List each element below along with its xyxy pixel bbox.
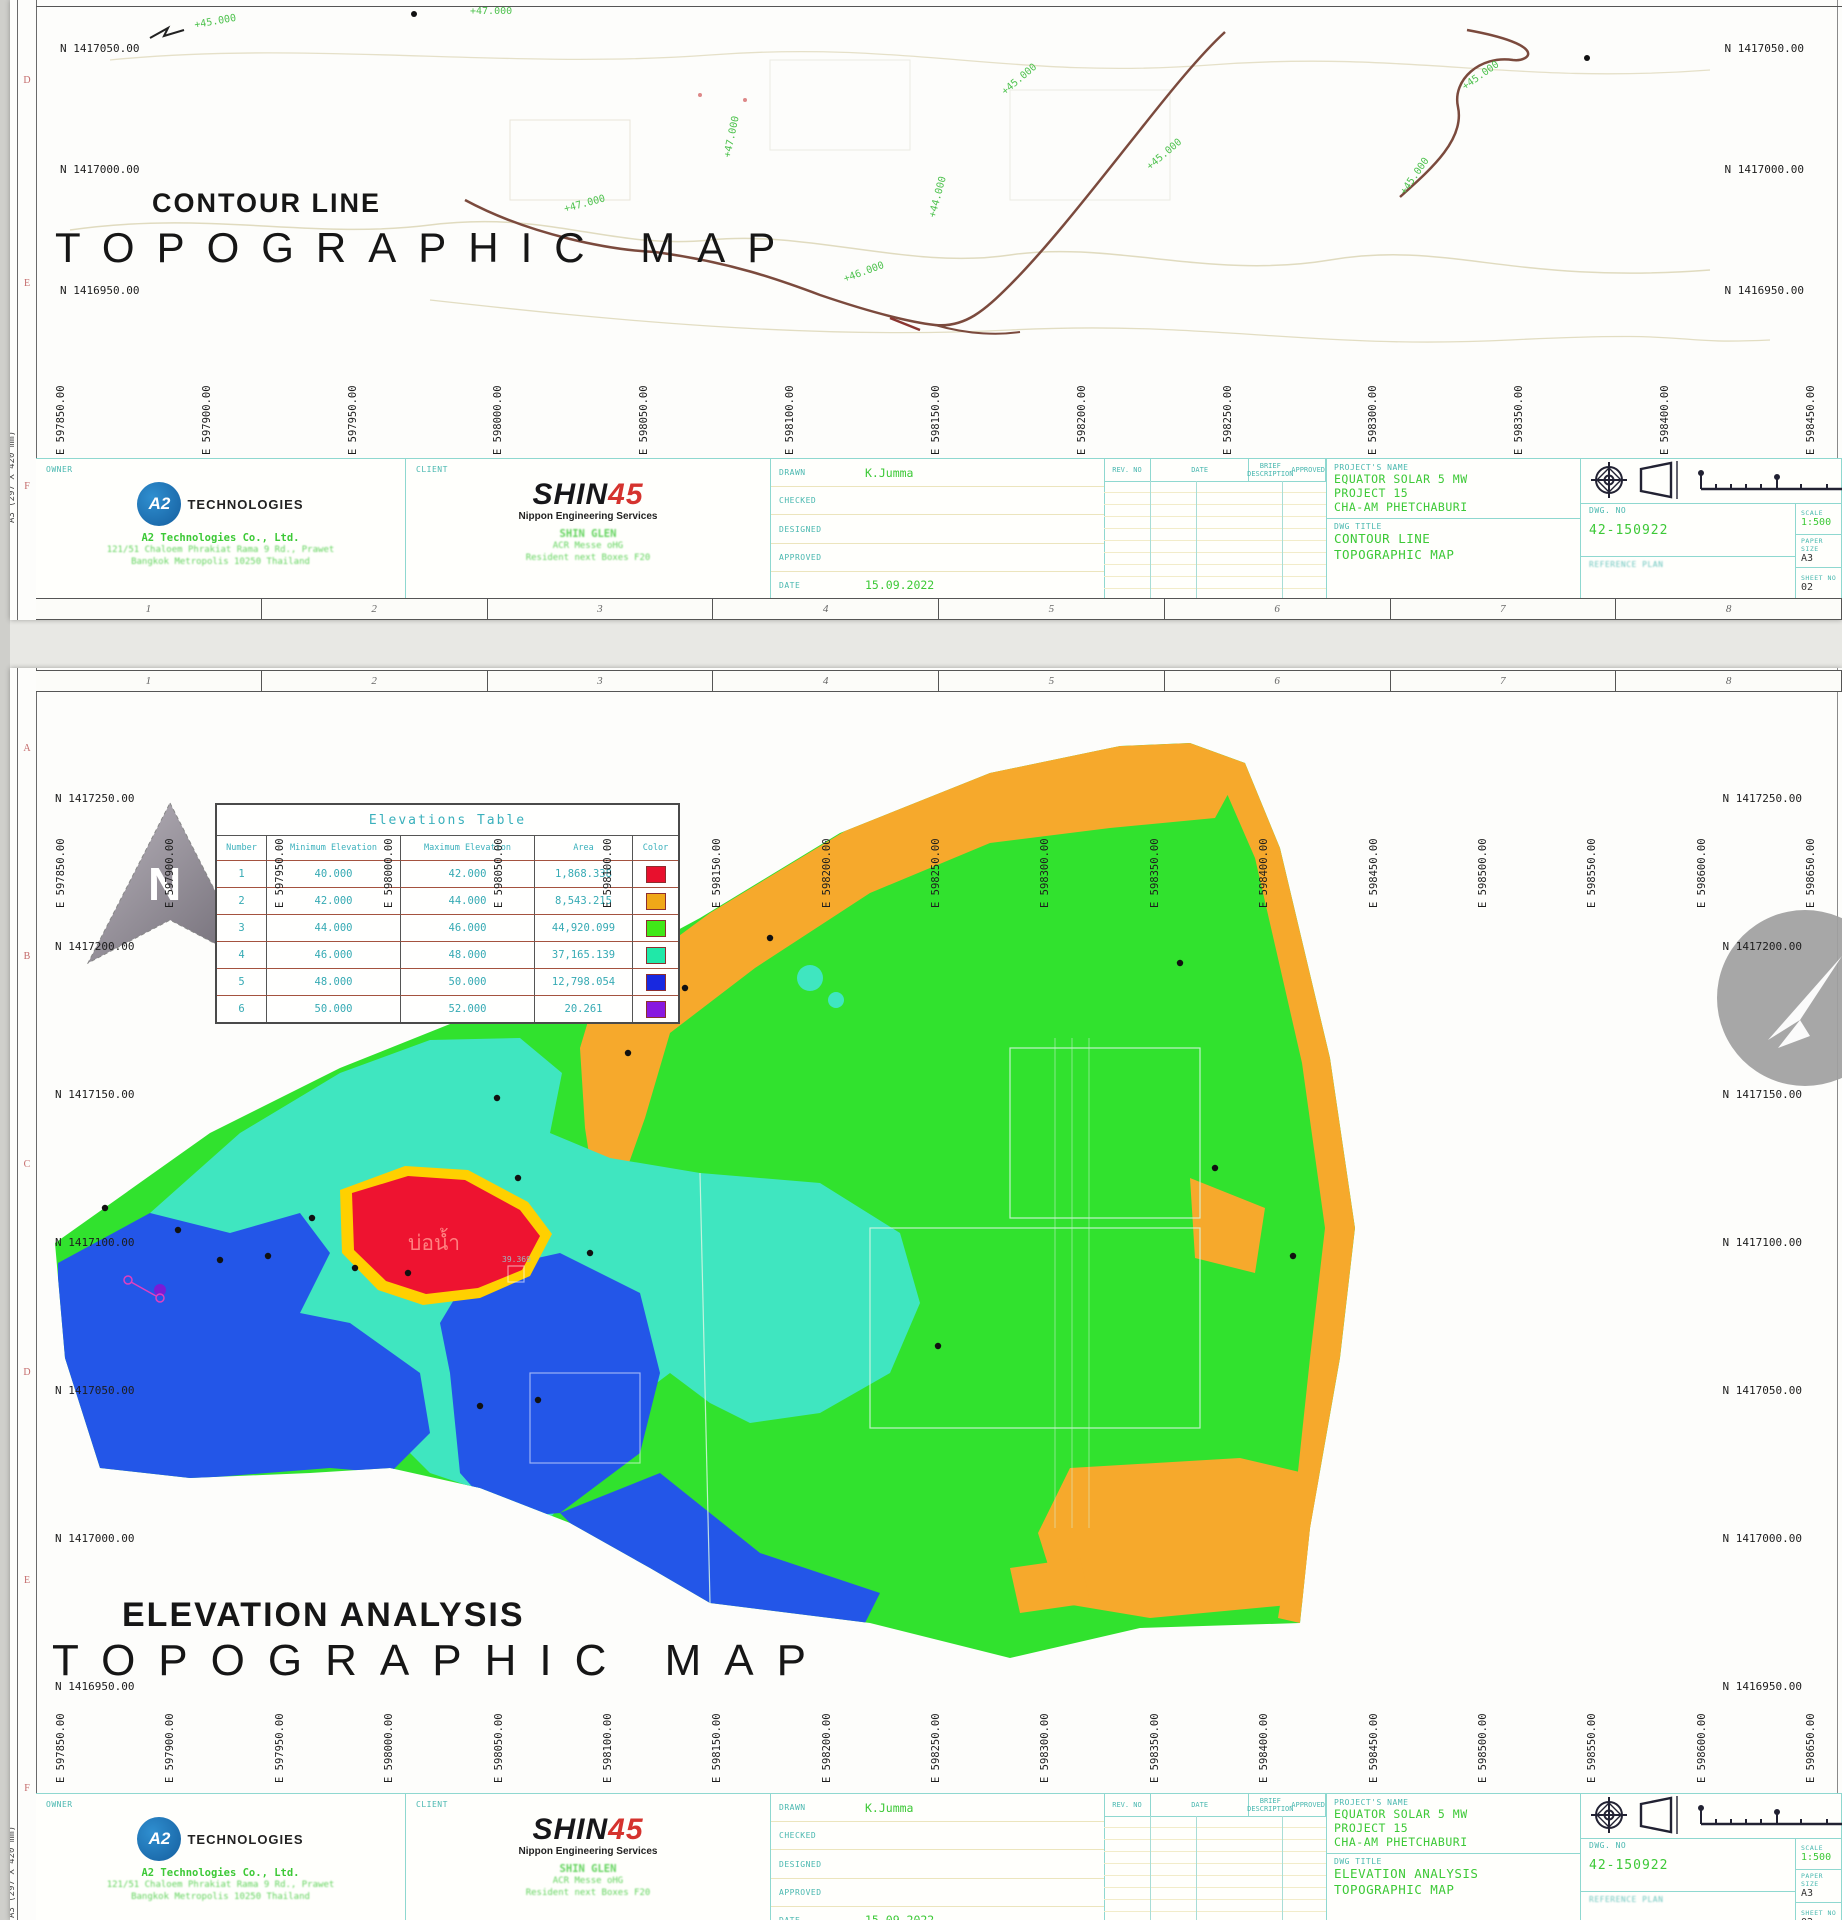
- revision-column-header: DATE: [1151, 1794, 1249, 1816]
- a2-logo-icon: A2: [137, 482, 181, 526]
- cell-max-elevation: 50.000: [401, 969, 535, 996]
- northing-label: N 1417050.00: [1723, 1384, 1802, 1398]
- cell-area: 37,165.139: [535, 942, 633, 969]
- reference-label: REFERENCE PLAN: [1589, 560, 1787, 569]
- northing-label: N 1416950.00: [60, 284, 139, 298]
- northing-label: N 1416950.00: [1725, 284, 1804, 298]
- easting-label: E 598100.00: [602, 828, 614, 908]
- easting-label: E 598400.00: [1659, 375, 1671, 455]
- easting-labels: E 597850.00E 597900.00E 597950.00E 59800…: [55, 375, 1817, 455]
- northing-label: N 1417000.00: [55, 1532, 134, 1546]
- easting-label: E 598100.00: [602, 1703, 614, 1783]
- drawing-info-block: DWG. NO 42-150922 REFERENCE PLAN SCALE1:…: [1581, 459, 1842, 599]
- color-swatch: [646, 974, 666, 991]
- ruler-number: 1: [36, 599, 262, 619]
- a2-company-name: TECHNOLOGIES: [187, 1832, 303, 1847]
- field-label: DRAWN: [779, 1803, 851, 1812]
- scale-label: SCALE: [1801, 1844, 1841, 1852]
- drawing-info-block: DWG. NO 42-150922 REFERENCE PLAN SCALE1:…: [1581, 1794, 1842, 1920]
- paper-size-value: A3: [1801, 553, 1841, 564]
- a2-logo-icon: A2: [137, 1817, 181, 1861]
- field-label: DATE: [779, 581, 851, 590]
- shin45-subtitle: Nippon Engineering Services: [416, 511, 760, 522]
- page-edge: [0, 0, 10, 1920]
- a2-company-line: A2 Technologies Co., Ltd.: [46, 532, 395, 544]
- sheet-contour-map: DEF +45.000 +47.000 +47.000 +44.000 +45.…: [10, 0, 1842, 620]
- northing-label: N 1417200.00: [1723, 940, 1802, 954]
- map-subtitle: CONTOUR LINE: [152, 188, 381, 219]
- easting-label: E 598050.00: [638, 375, 650, 455]
- signature-field-row: CHECKED: [771, 487, 1104, 515]
- easting-label: E 598300.00: [1039, 828, 1051, 908]
- dwg-title-line: ELEVATION ANALYSIS: [1334, 1866, 1572, 1882]
- easting-label: E 598450.00: [1805, 375, 1817, 455]
- sheet-elevation-map: ABCDEF 12345678: [10, 668, 1842, 1920]
- easting-label: E 598200.00: [821, 1703, 833, 1783]
- field-label: DESIGNED: [779, 1860, 851, 1869]
- revision-table: REV. NODATEBRIEF DESCRIPTIONAPPROVED: [1104, 459, 1327, 599]
- project-name-line: EQUATOR SOLAR 5 MW: [1334, 472, 1572, 486]
- color-swatch: [646, 947, 666, 964]
- signature-field-row: DESIGNED: [771, 1850, 1104, 1878]
- scale-value: 1:500: [1801, 1852, 1841, 1863]
- signature-fields: DRAWN K.Jumma CHECKED DESIGNED APPROVED …: [771, 459, 1105, 599]
- easting-label: E 598500.00: [1477, 1703, 1489, 1783]
- easting-label: E 598450.00: [1368, 1703, 1380, 1783]
- easting-label: E 597850.00: [55, 1703, 67, 1783]
- cell-number: 4: [217, 942, 267, 969]
- easting-label: E 597850.00: [55, 375, 67, 455]
- dwg-title-label: DWG TITLE: [1334, 1857, 1572, 1866]
- easting-label: E 598550.00: [1586, 828, 1598, 908]
- easting-label: E 597950.00: [274, 1703, 286, 1783]
- project-name-line: CHA-AM PHETCHABURI: [1334, 500, 1572, 514]
- sheet-no-label: SHEET NO: [1801, 574, 1841, 582]
- owner-block: OWNER A2 TECHNOLOGIES A2 Technologies Co…: [36, 1794, 406, 1920]
- project-block: PROJECT'S NAME EQUATOR SOLAR 5 MWPROJECT…: [1326, 1794, 1581, 1920]
- ruler-number: 6: [1165, 599, 1391, 619]
- project-name-line: EQUATOR SOLAR 5 MW: [1334, 1807, 1572, 1821]
- easting-label: E 598150.00: [930, 375, 942, 455]
- reference-cell: REFERENCE PLAN: [1581, 1892, 1796, 1920]
- frame-column-ruler: 12345678: [36, 598, 1842, 620]
- sheet-no-value: 02: [1801, 582, 1841, 593]
- field-label: CHECKED: [779, 1831, 851, 1840]
- paper-size-note: A3 (297 X 420 mm): [10, 398, 17, 523]
- easting-label: E 598000.00: [492, 375, 504, 455]
- scale-label: SCALE: [1801, 509, 1841, 517]
- easting-label: E 598600.00: [1696, 828, 1708, 908]
- a2-company-name: TECHNOLOGIES: [187, 497, 303, 512]
- owner-label: OWNER: [46, 465, 395, 474]
- cell-min-elevation: 46.000: [267, 942, 401, 969]
- cell-color: [633, 942, 678, 969]
- client-block: CLIENT SHIN45 Nippon Engineering Service…: [406, 1794, 771, 1920]
- project-name-line: CHA-AM PHETCHABURI: [1334, 1835, 1572, 1849]
- field-value: 15.09.2022: [865, 1913, 934, 1920]
- projection-and-scalebar: [1581, 459, 1841, 504]
- contour-elev-label: +47.000: [563, 193, 607, 215]
- easting-label: E 598150.00: [711, 828, 723, 908]
- easting-label: E 598100.00: [784, 375, 796, 455]
- owner-block: OWNER A2 TECHNOLOGIES A2 Technologies Co…: [36, 459, 406, 599]
- cell-min-elevation: 50.000: [267, 996, 401, 1022]
- color-swatch: [646, 920, 666, 937]
- signature-field-row: CHECKED: [771, 1822, 1104, 1850]
- project-name-label: PROJECT'S NAME: [1334, 463, 1572, 472]
- easting-label: E 597850.00: [55, 828, 67, 908]
- northing-label: N 1416950.00: [1723, 1680, 1802, 1694]
- easting-label: E 598350.00: [1149, 1703, 1161, 1783]
- shin45-subtitle: Nippon Engineering Services: [416, 1846, 760, 1857]
- easting-label: E 598050.00: [493, 1703, 505, 1783]
- map-subtitle: ELEVATION ANALYSIS: [122, 1596, 525, 1635]
- paper-size-value: A3: [1801, 1888, 1841, 1899]
- revision-rows-empty: [1104, 1816, 1326, 1920]
- easting-label: E 598400.00: [1258, 1703, 1270, 1783]
- cell-min-elevation: 44.000: [267, 915, 401, 942]
- contour-elev-label: +46.000: [842, 260, 885, 285]
- cell-number: 3: [217, 915, 267, 942]
- projection-and-scalebar: [1581, 1794, 1841, 1839]
- northing-label: N 1417150.00: [1723, 1088, 1802, 1102]
- paper-size-label: PAPER SIZE: [1801, 537, 1841, 553]
- cell-color: [633, 996, 678, 1022]
- table-row: 4 46.000 48.000 37,165.139: [217, 942, 678, 969]
- contour-elev-label: +44.000: [927, 175, 949, 219]
- project-name-label: PROJECT'S NAME: [1334, 1798, 1572, 1807]
- easting-label: E 598550.00: [1586, 1703, 1598, 1783]
- northing-labels-right: N 1417050.00N 1417000.00N 1416950.00: [1725, 42, 1804, 405]
- pond-label: บ่อน้ำ: [408, 1228, 460, 1255]
- signature-field-row: APPROVED: [771, 544, 1104, 572]
- client-label: CLIENT: [416, 465, 760, 474]
- dwg-title-line: CONTOUR LINE: [1334, 531, 1572, 547]
- easting-label: E 598200.00: [1076, 375, 1088, 455]
- signature-field-row: DATE 15.09.2022: [771, 1907, 1104, 1920]
- easting-labels-bottom: E 597850.00E 597900.00E 597950.00E 59800…: [55, 1703, 1817, 1783]
- scale-paper-sheet-cells: SCALE1:500 PAPER SIZEA3 SHEET NO02: [1796, 1838, 1841, 1920]
- ruler-number: 8: [1616, 599, 1842, 619]
- field-label: APPROVED: [779, 553, 851, 562]
- dwg-title-line: TOPOGRAPHIC MAP: [1334, 547, 1572, 563]
- signature-field-row: DRAWN K.Jumma: [771, 459, 1104, 487]
- easting-label: E 598450.00: [1368, 828, 1380, 908]
- dwg-no-value: 42-150922: [1589, 1858, 1787, 1873]
- contour-elev-label: +47.000: [722, 115, 742, 159]
- northing-label: N 1417100.00: [1723, 1236, 1802, 1250]
- easting-label: E 598000.00: [383, 1703, 395, 1783]
- dwg-no-cell: DWG. NO 42-150922: [1581, 1838, 1796, 1892]
- paper-size-note: A3 (297 X 420 mm): [10, 1793, 17, 1918]
- map-title: TOPOGRAPHIC MAP: [55, 224, 797, 272]
- northing-labels-right: N 1417250.00N 1417200.00N 1417150.00N 14…: [1723, 792, 1802, 1828]
- cell-area: 20.261: [535, 996, 633, 1022]
- revision-rows-empty: [1104, 481, 1326, 599]
- revision-column-header: DATE: [1151, 459, 1249, 481]
- cell-number: 5: [217, 969, 267, 996]
- northing-label: N 1417250.00: [1723, 792, 1802, 806]
- northing-label: N 1417050.00: [60, 42, 139, 56]
- client-line: Resident next Boxes F20: [416, 552, 760, 564]
- easting-label: E 598200.00: [821, 828, 833, 908]
- project-name-line: PROJECT 15: [1334, 1821, 1572, 1835]
- shin45-logo: SHIN45: [416, 1815, 760, 1845]
- ruler-number: 4: [713, 599, 939, 619]
- easting-label: E 598300.00: [1367, 375, 1379, 455]
- signature-fields: DRAWN K.Jumma CHECKED DESIGNED APPROVED …: [771, 1794, 1105, 1920]
- dwg-no-value: 42-150922: [1589, 523, 1787, 538]
- ruler-number: 7: [1391, 599, 1617, 619]
- row-letter: F: [24, 481, 30, 620]
- map-title: TOPOGRAPHIC MAP: [52, 1636, 829, 1686]
- northing-label: N 1417000.00: [1723, 1532, 1802, 1546]
- easting-label: E 597900.00: [201, 375, 213, 455]
- field-value: K.Jumma: [865, 466, 913, 480]
- easting-label: E 597950.00: [274, 828, 286, 908]
- easting-label: E 598650.00: [1805, 1703, 1817, 1783]
- signature-field-row: DRAWN K.Jumma: [771, 1794, 1104, 1822]
- shin45-logo: SHIN45: [416, 480, 760, 510]
- dwg-title-label: DWG TITLE: [1334, 522, 1572, 531]
- field-value: K.Jumma: [865, 1801, 913, 1815]
- easting-label: E 598350.00: [1149, 828, 1161, 908]
- northing-label: N 1417150.00: [55, 1088, 134, 1102]
- contour-elev-label: +45.000: [1145, 137, 1184, 173]
- reference-cell: REFERENCE PLAN: [1581, 557, 1796, 599]
- easting-label: E 598400.00: [1258, 828, 1270, 908]
- client-line: SHIN GLEN: [416, 528, 760, 540]
- table-row: 6 50.000 52.000 20.261: [217, 996, 678, 1022]
- dwg-no-label: DWG. NO: [1589, 506, 1787, 515]
- easting-label: E 598150.00: [711, 1703, 723, 1783]
- revision-column-header: REV. NO: [1104, 459, 1151, 481]
- reference-label: REFERENCE PLAN: [1589, 1895, 1787, 1904]
- cell-max-elevation: 52.000: [401, 996, 535, 1022]
- sheet-no-label: SHEET NO: [1801, 1909, 1841, 1917]
- scale-value: 1:500: [1801, 517, 1841, 528]
- a2-company-line: A2 Technologies Co., Ltd.: [46, 1867, 395, 1879]
- northing-label: N 1417050.00: [1725, 42, 1804, 56]
- cell-color: [633, 969, 678, 996]
- northing-label: N 1417250.00: [55, 792, 134, 806]
- project-block: PROJECT'S NAME EQUATOR SOLAR 5 MWPROJECT…: [1326, 459, 1581, 599]
- northing-labels-left: N 1417050.00N 1417000.00N 1416950.00: [60, 42, 139, 405]
- cell-color: [633, 915, 678, 942]
- northing-label: N 1417000.00: [1725, 163, 1804, 177]
- easting-labels-top: E 597850.00E 597900.00E 597950.00E 59800…: [55, 828, 1817, 908]
- ruler-number: 2: [262, 599, 488, 619]
- signature-field-row: APPROVED: [771, 1879, 1104, 1907]
- easting-label: E 598650.00: [1805, 828, 1817, 908]
- dwg-title-line: TOPOGRAPHIC MAP: [1334, 1882, 1572, 1898]
- cell-number: 6: [217, 996, 267, 1022]
- cell-area: 44,920.099: [535, 915, 633, 942]
- signature-field-row: DATE 15.09.2022: [771, 572, 1104, 599]
- cell-max-elevation: 48.000: [401, 942, 535, 969]
- revision-column-header: APPROVED: [1291, 1794, 1326, 1816]
- client-line: Resident next Boxes F20: [416, 1887, 760, 1899]
- field-label: DATE: [779, 1916, 851, 1920]
- field-label: DESIGNED: [779, 525, 851, 534]
- contour-elev-label: +47.000: [470, 6, 512, 17]
- easting-label: E 597900.00: [164, 828, 176, 908]
- paper-size-label: PAPER SIZE: [1801, 1872, 1841, 1888]
- ruler-number: 5: [939, 599, 1165, 619]
- table-row: 3 44.000 46.000 44,920.099: [217, 915, 678, 942]
- easting-label: E 598250.00: [1222, 375, 1234, 455]
- northing-label: N 1417000.00: [60, 163, 139, 177]
- easting-label: E 598250.00: [930, 828, 942, 908]
- table-row: 5 48.000 50.000 12,798.054: [217, 969, 678, 996]
- easting-label: E 598350.00: [1513, 375, 1525, 455]
- dwg-no-label: DWG. NO: [1589, 1841, 1787, 1850]
- client-line: SHIN GLEN: [416, 1863, 760, 1875]
- a2-address-line: Bangkok Metropolis 10250 Thailand: [46, 1891, 395, 1903]
- a2-address-line: Bangkok Metropolis 10250 Thailand: [46, 556, 395, 568]
- contour-elev-label: +45.000: [194, 13, 237, 31]
- revision-column-header: BRIEF DESCRIPTION: [1249, 459, 1291, 481]
- owner-label: OWNER: [46, 1800, 395, 1809]
- cell-min-elevation: 48.000: [267, 969, 401, 996]
- revision-column-header: BRIEF DESCRIPTION: [1249, 1794, 1291, 1816]
- revision-column-header: REV. NO: [1104, 1794, 1151, 1816]
- cell-max-elevation: 46.000: [401, 915, 535, 942]
- field-label: APPROVED: [779, 1888, 851, 1897]
- northing-label: N 1417100.00: [55, 1236, 134, 1250]
- color-swatch: [646, 1001, 666, 1018]
- field-value: 15.09.2022: [865, 578, 934, 592]
- field-label: DRAWN: [779, 468, 851, 477]
- easting-label: E 597900.00: [164, 1703, 176, 1783]
- ruler-number: 3: [488, 599, 714, 619]
- client-line: ACR Messe oHG: [416, 540, 760, 552]
- northing-label: N 1417050.00: [55, 1384, 134, 1398]
- easting-label: E 598500.00: [1477, 828, 1489, 908]
- easting-label: E 598600.00: [1696, 1703, 1708, 1783]
- spot-elevation-label: 39.369: [502, 1255, 531, 1264]
- title-block: OWNER A2 TECHNOLOGIES A2 Technologies Co…: [36, 458, 1842, 600]
- revision-column-header: APPROVED: [1291, 459, 1326, 481]
- easting-label: E 598250.00: [930, 1703, 942, 1783]
- easting-label: E 598000.00: [383, 828, 395, 908]
- dwg-no-cell: DWG. NO 42-150922: [1581, 503, 1796, 557]
- contour-elev-label: +45.000: [1398, 156, 1431, 197]
- project-name-line: PROJECT 15: [1334, 486, 1572, 500]
- title-block: OWNER A2 TECHNOLOGIES A2 Technologies Co…: [36, 1793, 1842, 1920]
- easting-label: E 598300.00: [1039, 1703, 1051, 1783]
- signature-field-row: DESIGNED: [771, 515, 1104, 543]
- client-block: CLIENT SHIN45 Nippon Engineering Service…: [406, 459, 771, 599]
- northing-label: N 1417200.00: [55, 940, 134, 954]
- scale-paper-sheet-cells: SCALE1:500 PAPER SIZEA3 SHEET NO02: [1796, 503, 1841, 599]
- cell-area: 12,798.054: [535, 969, 633, 996]
- a2-address-line: 121/51 Chaloem Phrakiat Rama 9 Rd., Praw…: [46, 1879, 395, 1891]
- drawing-canvas: DEF +45.000 +47.000 +47.000 +44.000 +45.…: [0, 0, 1842, 1920]
- revision-table: REV. NODATEBRIEF DESCRIPTIONAPPROVED: [1104, 1794, 1327, 1920]
- easting-label: E 597950.00: [347, 375, 359, 455]
- a2-address-line: 121/51 Chaloem Phrakiat Rama 9 Rd., Praw…: [46, 544, 395, 556]
- field-label: CHECKED: [779, 496, 851, 505]
- client-line: ACR Messe oHG: [416, 1875, 760, 1887]
- contour-elev-label: +45.000: [1000, 62, 1039, 98]
- easting-label: E 598050.00: [493, 828, 505, 908]
- client-label: CLIENT: [416, 1800, 760, 1809]
